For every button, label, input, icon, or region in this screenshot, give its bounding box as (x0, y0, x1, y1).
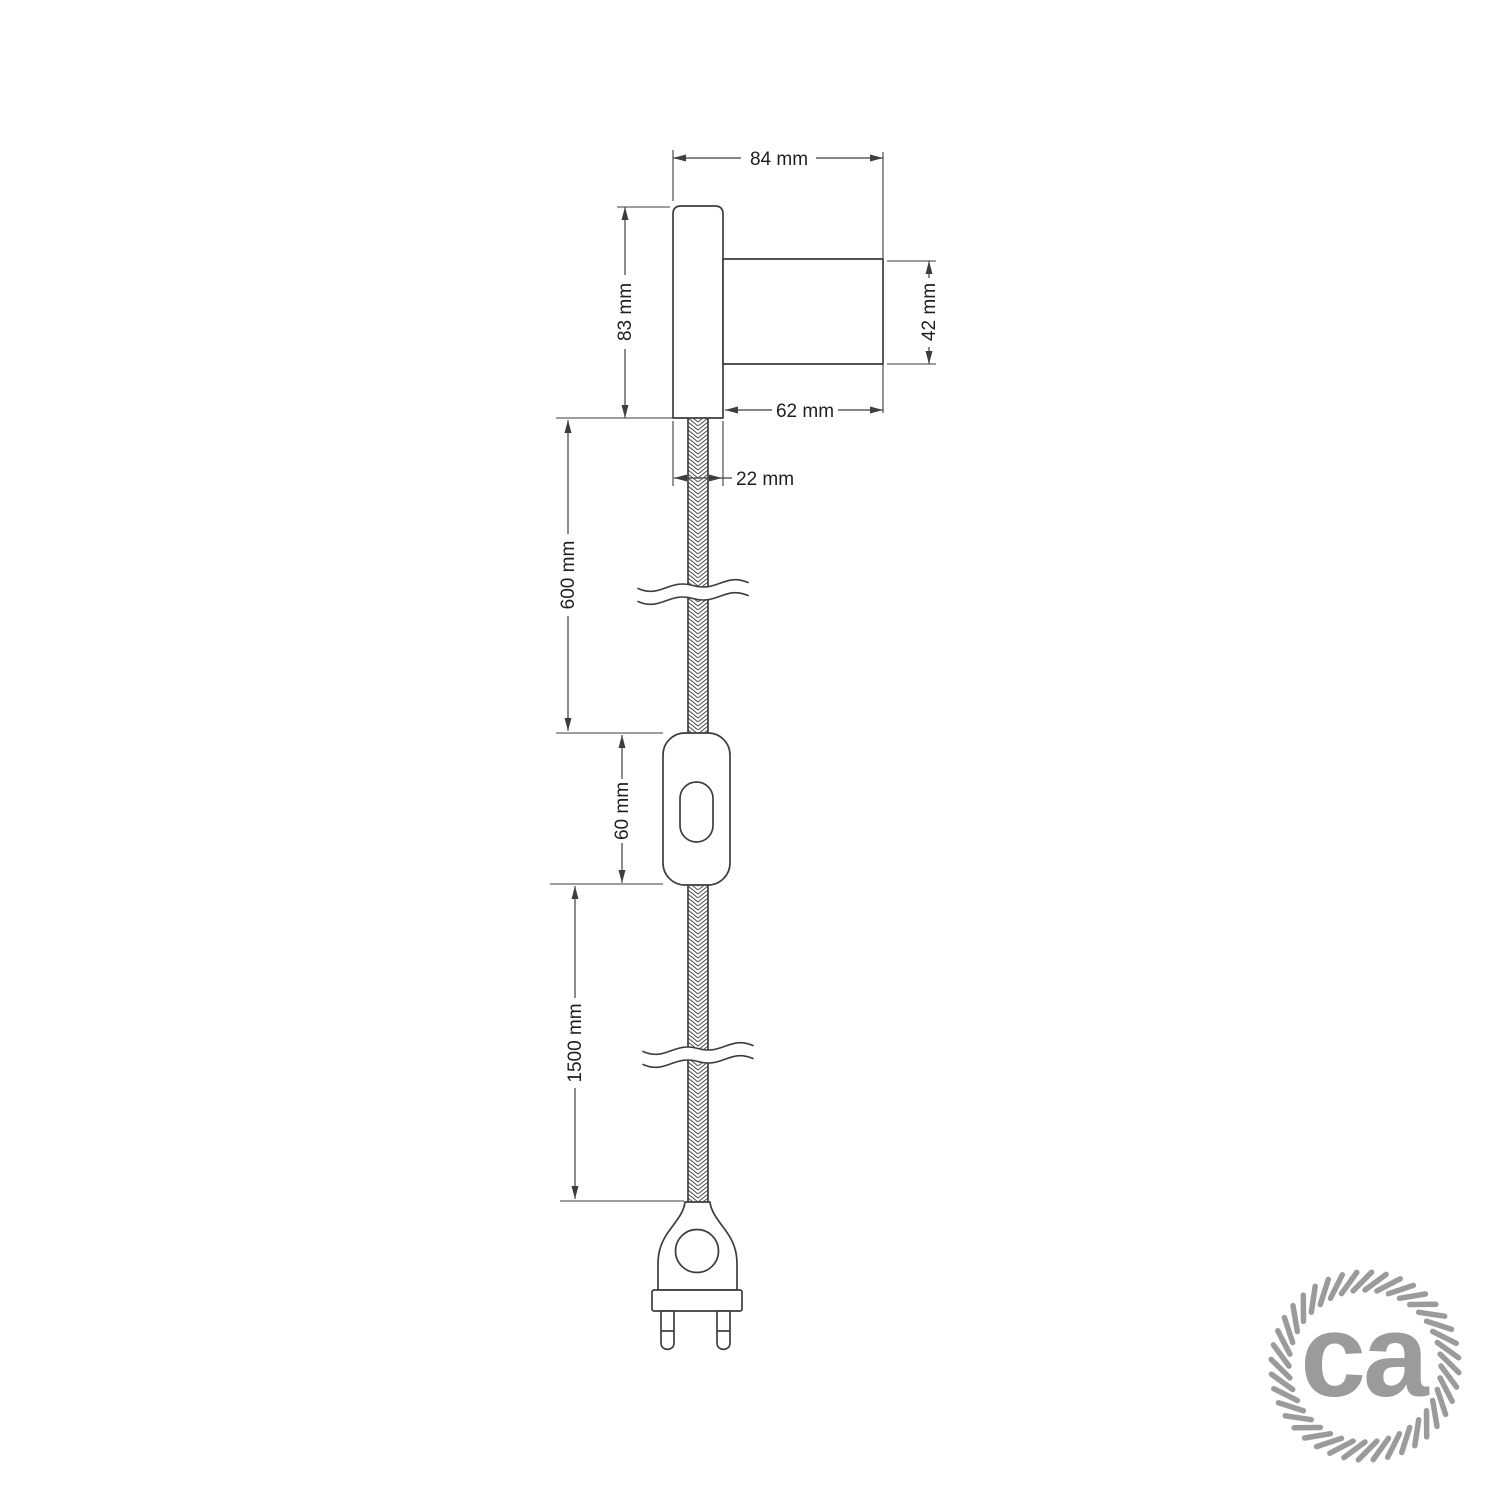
dim-socket-diameter: 42 mm (887, 261, 940, 364)
lamp-dimension-diagram: 84 mm 83 mm 42 mm 62 mm (0, 0, 1500, 1500)
rope-strand (1402, 1428, 1410, 1453)
rope-strand (1437, 1390, 1445, 1415)
dim-label-switch-length: 60 mm (612, 782, 633, 840)
dim-label-fixture-width: 84 mm (750, 149, 808, 170)
dim-cable-lower-length: 1500 mm (560, 886, 684, 1201)
braided-cable-upper (688, 418, 708, 733)
dim-label-cable-upper-length: 600 mm (558, 541, 579, 610)
plug-flange (652, 1290, 742, 1311)
switch-rocker (680, 782, 713, 842)
rope-strand (1284, 1318, 1292, 1343)
dim-label-cable-lower-length: 1500 mm (565, 1003, 586, 1082)
wall-lamp-fixture (673, 206, 883, 418)
plug-finger-hole (676, 1230, 719, 1273)
two-pin-plug (652, 1202, 742, 1349)
lamp-socket-cylinder (723, 259, 883, 364)
braided-cable-lower (688, 885, 708, 1202)
dim-label-base-depth: 22 mm (736, 469, 794, 490)
dim-base-height: 83 mm (615, 207, 670, 418)
rope-strand (1433, 1401, 1437, 1427)
cable-braid-fill (688, 885, 708, 1202)
logo-text: ca (1300, 1290, 1430, 1422)
break-mask (643, 1049, 753, 1061)
inline-switch (663, 733, 730, 885)
dim-label-socket-length: 62 mm (776, 401, 834, 422)
rope-strand (1427, 1321, 1452, 1329)
rope-strand (1415, 1420, 1419, 1446)
dim-label-socket-diameter: 42 mm (919, 283, 940, 341)
dim-socket-length: 62 mm (725, 401, 883, 422)
rope-strand (1305, 1434, 1331, 1438)
brand-logo: ca (1271, 1272, 1459, 1460)
rope-strand (1317, 1438, 1342, 1446)
dim-label-base-height: 83 mm (615, 283, 636, 341)
wall-base-plate (673, 206, 723, 418)
dim-switch-length: 60 mm (550, 735, 663, 884)
break-mask (638, 586, 748, 598)
cable-braid-fill (688, 418, 708, 733)
rope-strand (1293, 1306, 1297, 1332)
technical-drawing-page: 84 mm 83 mm 42 mm 62 mm (0, 0, 1500, 1500)
